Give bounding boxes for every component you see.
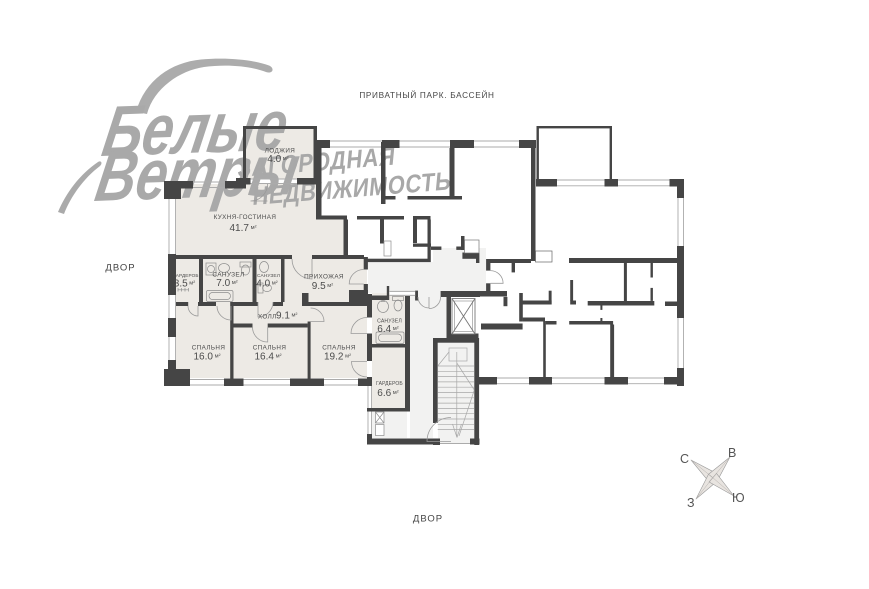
svg-text:В: В (728, 446, 736, 460)
svg-text:ХОЛЛ: ХОЛЛ (258, 314, 277, 321)
svg-text:ПРИВАТНЫЙ ПАРК. БАССЕЙН: ПРИВАТНЫЙ ПАРК. БАССЕЙН (359, 89, 494, 100)
svg-text:СПАЛЬНЯ: СПАЛЬНЯ (192, 345, 226, 352)
svg-text:З: З (687, 496, 695, 510)
svg-text:ГАРДЕРОБ: ГАРДЕРОБ (376, 381, 403, 387)
svg-text:СПАЛЬНЯ: СПАЛЬНЯ (253, 345, 287, 352)
svg-text:ПРИХОЖАЯ: ПРИХОЖАЯ (304, 274, 344, 281)
svg-text:КУХНЯ-ГОСТИНАЯ: КУХНЯ-ГОСТИНАЯ (214, 214, 277, 221)
svg-text:СПАЛЬНЯ: СПАЛЬНЯ (322, 345, 356, 352)
svg-text:ДВОР: ДВОР (105, 263, 135, 274)
svg-text:ДВОР: ДВОР (413, 514, 443, 525)
svg-text:Ю: Ю (732, 491, 745, 505)
svg-text:С: С (680, 452, 689, 466)
svg-text:ГАРДЕРОБ: ГАРДЕРОБ (173, 273, 198, 278)
